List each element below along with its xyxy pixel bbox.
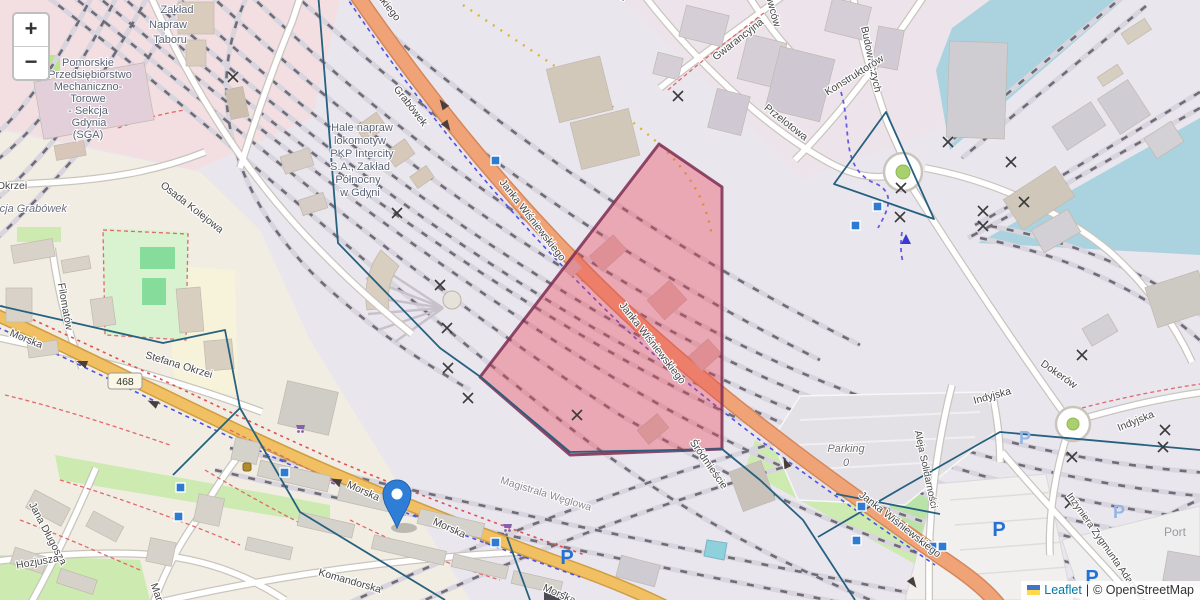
area-label: S.A., Zakład [330,161,390,173]
area-label: Torowe [70,93,105,105]
svg-text:468: 468 [116,376,134,388]
leaflet-link[interactable]: Leaflet [1044,583,1082,597]
area-label: Przedsiębiorstwo [48,69,132,81]
area-label: Port [1164,525,1187,539]
attribution-bar: Leaflet | © OpenStreetMap [1021,581,1200,600]
area-label: Mechaniczno- [54,81,123,93]
attribution-separator: | [1086,583,1089,597]
area-label: Hale napraw [331,122,393,134]
area-label: Północny [335,174,381,186]
area-label: Zakład [160,4,193,16]
parking-area-label: 0 [843,457,850,469]
area-label: - Sekcja [68,105,109,117]
area-label: PKP Intercity [330,148,394,160]
parking-icon: P [1019,428,1031,448]
area-label: Napraw [149,19,187,31]
area-label: lokomotyw [334,135,386,147]
parking-icon: P [992,519,1005,541]
ukraine-flag-icon [1027,585,1040,595]
map-tiles: P P P P P Zakład Napraw Taboru Pomorskie… [0,0,1200,600]
parking-area-label: Parking [827,443,865,455]
zoom-in-button[interactable]: + [14,14,48,46]
route-badge: 468 [108,373,142,389]
parking-icon: P [560,547,573,569]
street-label: Okrzei [0,180,27,192]
area-label: Taboru [153,34,187,46]
map-canvas[interactable]: P P P P P Zakład Napraw Taboru Pomorskie… [0,0,1200,600]
station-label: Stacja Grabówek [0,203,67,215]
area-label: (SGA) [73,129,104,141]
area-label: Gdynia [72,117,108,129]
zoom-control: + − [12,12,50,81]
area-label: Pomorskie [62,57,114,69]
osm-attribution-text: © OpenStreetMap [1093,583,1194,597]
area-label: w Gdyni [339,187,380,199]
zoom-out-button[interactable]: − [14,47,48,79]
parking-icon: P [1113,502,1125,522]
poi-icon [243,463,251,471]
